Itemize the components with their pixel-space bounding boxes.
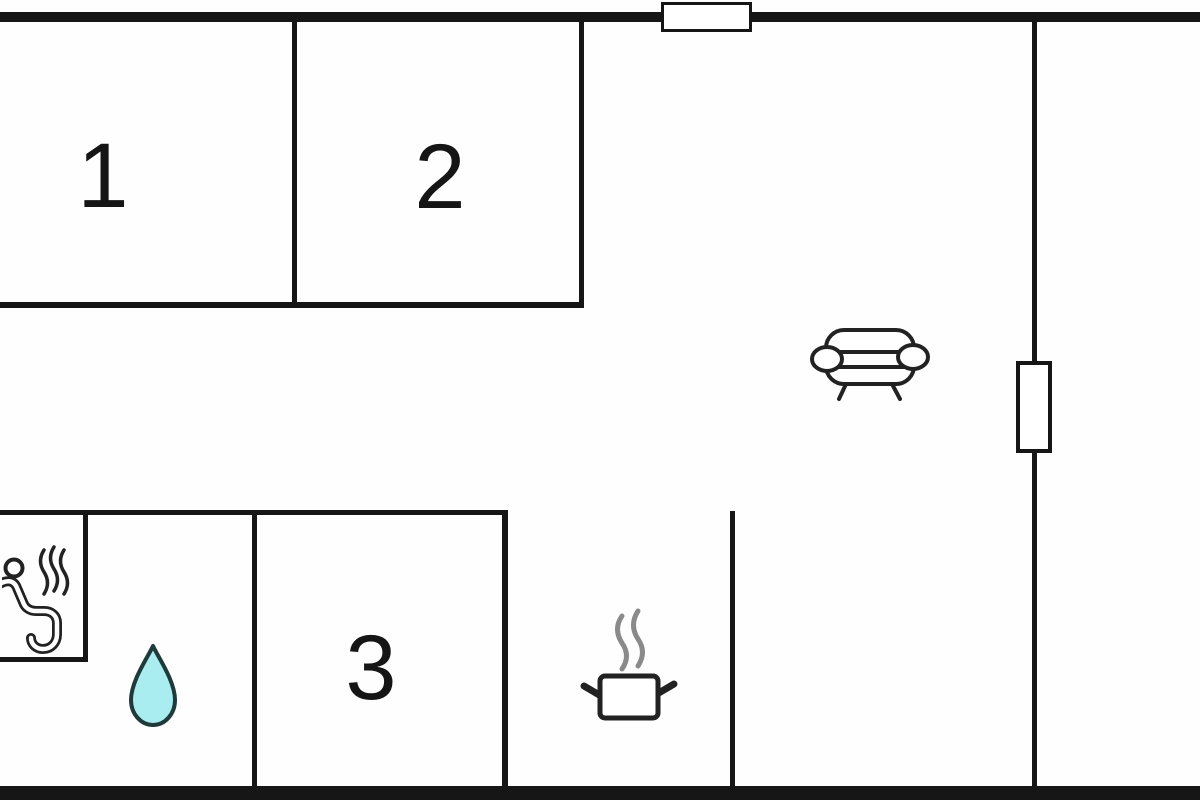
room-3-label: 3 [320, 618, 420, 718]
wall-between-room1-room2 [292, 22, 297, 308]
wall-top-exterior [0, 12, 1200, 22]
cooking-pot-icon [576, 608, 680, 722]
floor-plan: 1 2 3 [0, 0, 1200, 800]
water-drop-icon [126, 643, 180, 729]
sofa-icon [806, 322, 934, 402]
wall-bottom-exterior [0, 786, 1200, 800]
sauna-person-head [6, 560, 23, 577]
room-2-label: 2 [389, 127, 489, 227]
wall-room2-right [579, 22, 584, 308]
pot-steam-lines [618, 611, 643, 669]
wall-room3-right [502, 512, 508, 786]
sofa-leg-right [892, 384, 900, 399]
sofa-armrest-right [898, 345, 928, 369]
sofa-armrest-left [812, 347, 842, 371]
sauna-steam-lines [41, 547, 68, 594]
wall-kitchen-divider [730, 511, 735, 786]
wall-room3-left [252, 512, 257, 786]
room-1-label: 1 [52, 126, 152, 226]
sofa-leg-left [839, 384, 846, 399]
sauna-icon [2, 520, 82, 655]
wall-room1-room2-bottom [0, 302, 584, 308]
pot-body [600, 676, 658, 718]
window-icon [661, 2, 752, 32]
sauna-person-body [2, 581, 57, 649]
water-drop-shape [131, 646, 175, 725]
door-icon [1016, 361, 1052, 453]
